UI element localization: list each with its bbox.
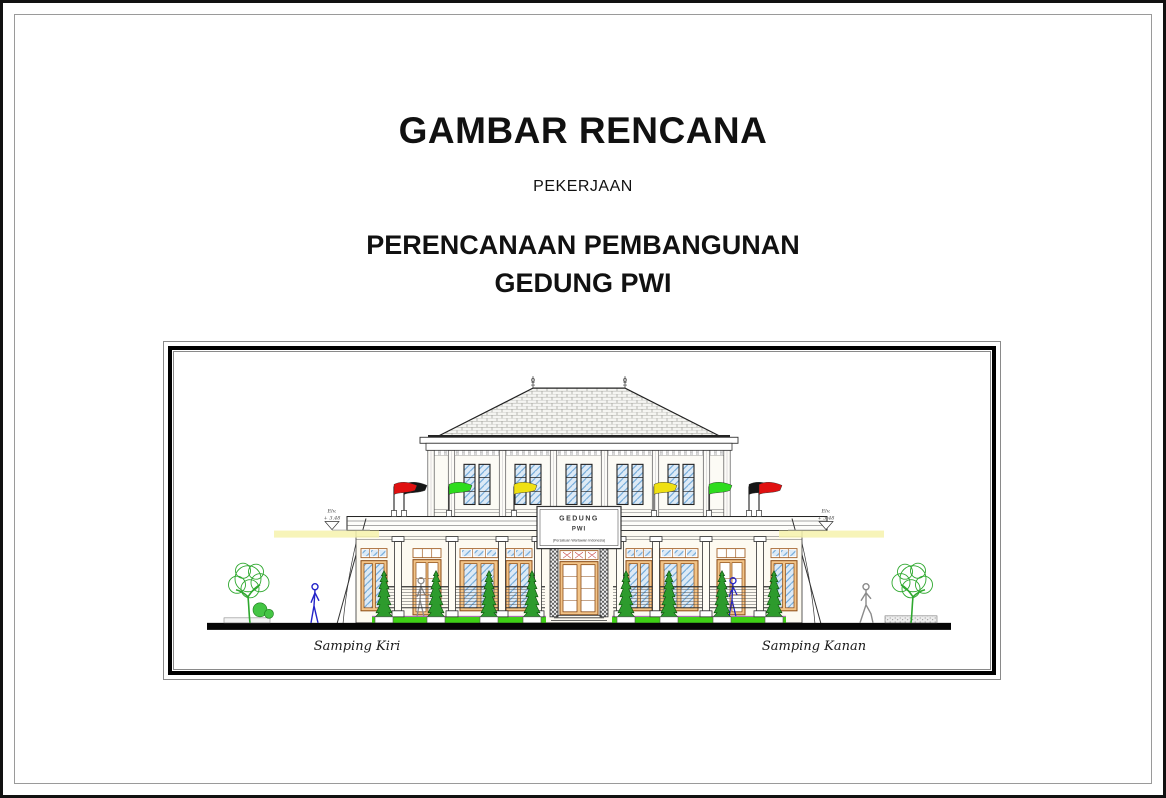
building-sign: GEDUNG PWI (Persatuan Wartawan Indonesia… [537,506,621,548]
elevation-value: + 3.48 [818,516,835,522]
project-name-line2: GEDUNG PWI [0,268,1166,299]
sign-line3: (Persatuan Wartawan Indonesia) [553,539,605,543]
project-name-line1: PERENCANAAN PEMBANGUNAN [0,230,1166,261]
elevation-drawing: GEDUNG PWI (Persatuan Wartawan Indonesia… [174,352,990,669]
elevation-value: + 3.48 [324,516,341,522]
elevation-highlight-left [274,531,379,538]
person-outside-right [860,584,873,623]
roof-finial-left [531,376,535,388]
tree-left [224,563,274,623]
elevation-highlight-right [779,531,884,538]
elevation-triangle-icon [325,522,339,530]
entrance-pillar-right [600,540,608,617]
view-label-right: Samping Kanan [762,639,866,654]
drawing-frame: GEDUNG PWI (Persatuan Wartawan Indonesia… [168,346,996,675]
flag-red-right [759,482,782,494]
sign-line1: GEDUNG [559,516,599,523]
elevation-label: Elv. [820,509,830,515]
tree-right [885,563,937,623]
grass-strip-left [372,617,546,623]
elevation-label: Elv. [326,509,336,515]
work-label: PEKERJAAN [0,178,1166,196]
drawing-panel: GEDUNG PWI (Persatuan Wartawan Indonesia… [163,341,1001,680]
tree-planter-left [224,618,270,623]
sign-line2: PWI [572,527,586,533]
ground-line [207,623,951,630]
bush [265,609,274,618]
roof-finial-right [623,376,627,388]
grass-strip-right [612,617,786,623]
document-title: GAMBAR RENCANA [0,110,1166,152]
view-label-left: Samping Kiri [314,639,401,654]
person-outside-left [311,584,319,623]
drawing-frame-inner: GEDUNG PWI (Persatuan Wartawan Indonesia… [173,351,991,670]
entrance [548,540,610,623]
cornice [420,437,738,450]
entrance-pillar-left [550,540,558,617]
hip-roof [428,376,730,437]
